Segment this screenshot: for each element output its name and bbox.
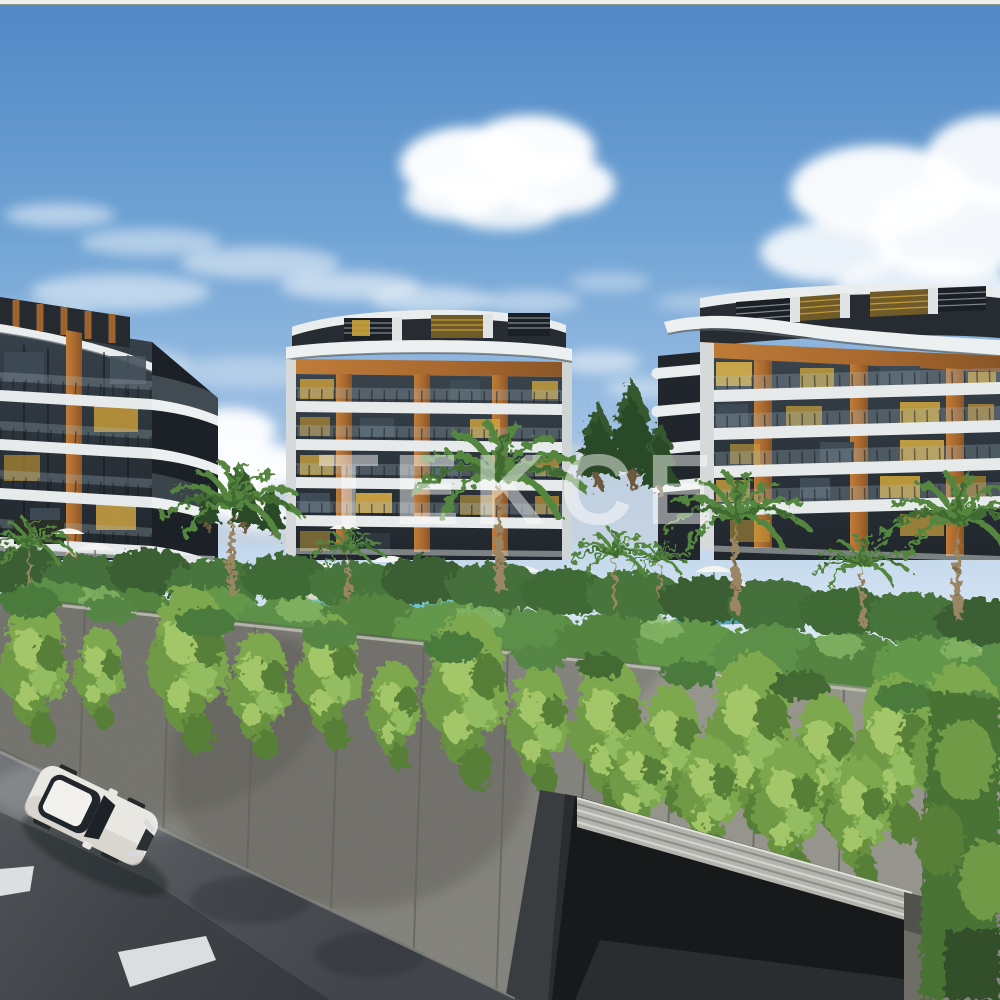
corner-ivy	[916, 690, 1000, 1000]
image-top-border	[0, 0, 1000, 5]
render-image: TEKCE	[0, 0, 1000, 1000]
tekce-watermark: TEKCE	[318, 438, 748, 548]
